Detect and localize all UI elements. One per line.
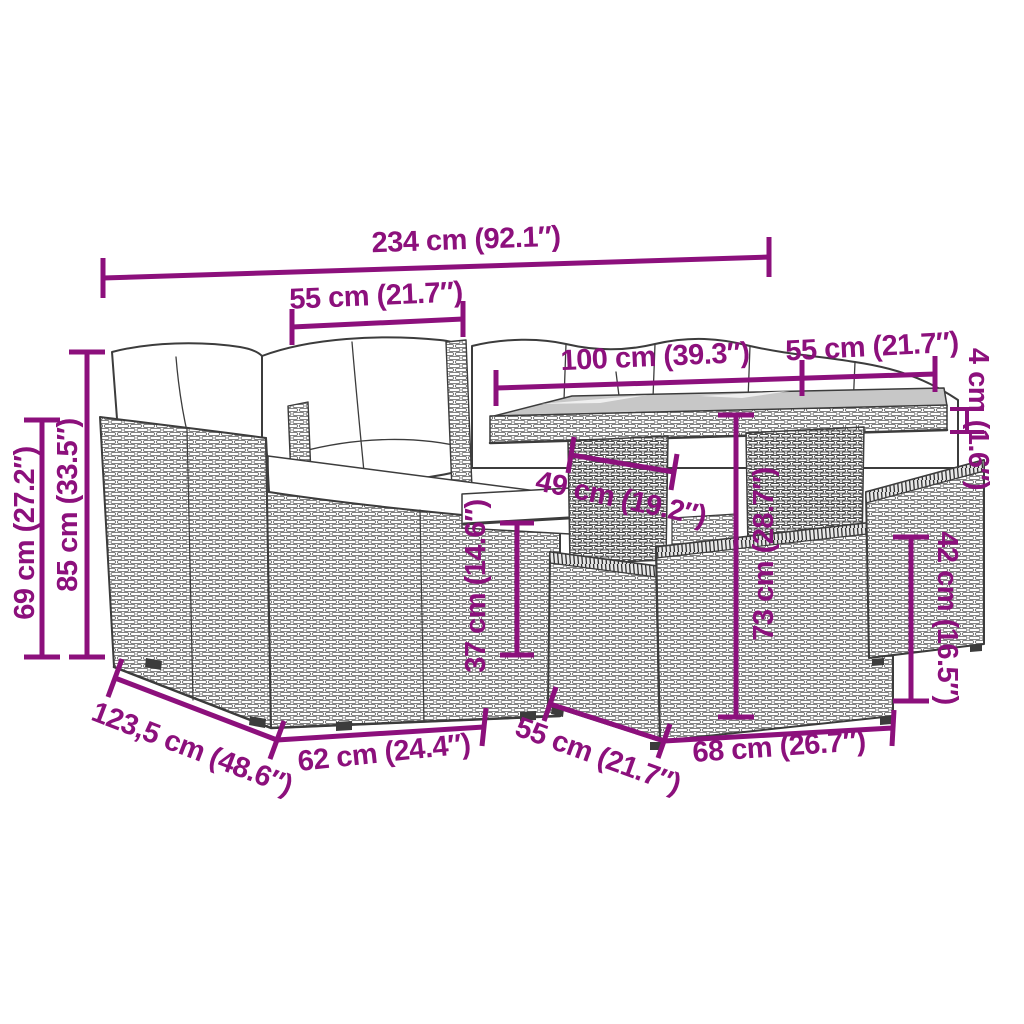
label-table-top-thickness: 4 cm (1.6″) — [962, 348, 994, 490]
label-height-arm: 69 cm (27.2″) — [9, 446, 41, 619]
label-table-height: 73 cm (28.7″) — [748, 467, 780, 640]
label-width-seat: 55 cm (21.7″) — [289, 276, 464, 316]
label-right-stool-height: 42 cm (16.5″) — [931, 531, 963, 704]
dim-cap — [892, 710, 894, 746]
stool-front — [548, 552, 660, 741]
label-width-total: 234 cm (92.1″) — [371, 221, 561, 260]
label-height-total: 85 cm (33.5″) — [52, 418, 84, 591]
furniture-dimension-diagram: 234 cm (92.1″) 55 cm (21.7″) 100 cm (39.… — [0, 0, 1024, 1024]
dim-line-width-total — [103, 257, 769, 278]
label-stool-height: 37 cm (14.6″) — [460, 499, 492, 672]
furniture-group — [100, 337, 984, 750]
dim-line-width-seat — [292, 319, 463, 327]
diagram-canvas: 234 cm (92.1″) 55 cm (21.7″) 100 cm (39.… — [0, 0, 1024, 1024]
